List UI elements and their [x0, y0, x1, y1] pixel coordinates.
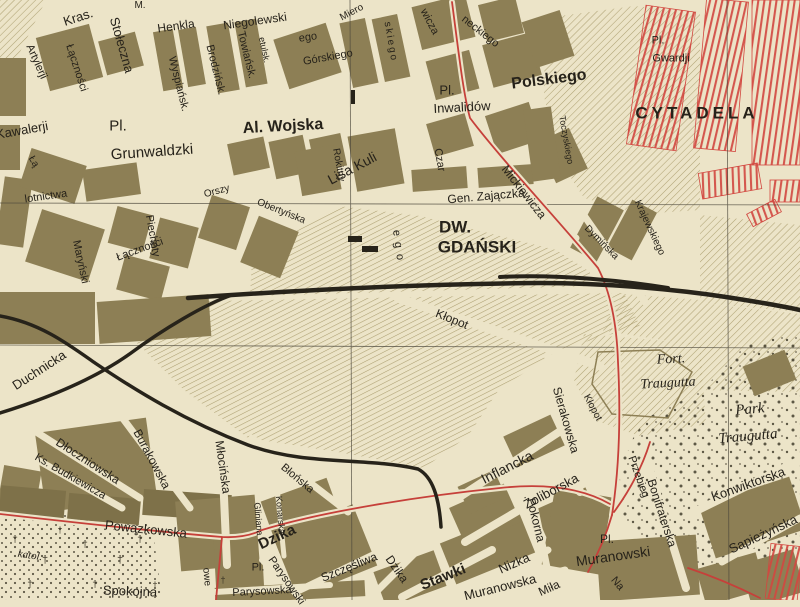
map-artwork [0, 0, 800, 600]
map-canvas: Kras.M.HenklaNiegolewskiegoStołecznaArty… [0, 0, 800, 600]
